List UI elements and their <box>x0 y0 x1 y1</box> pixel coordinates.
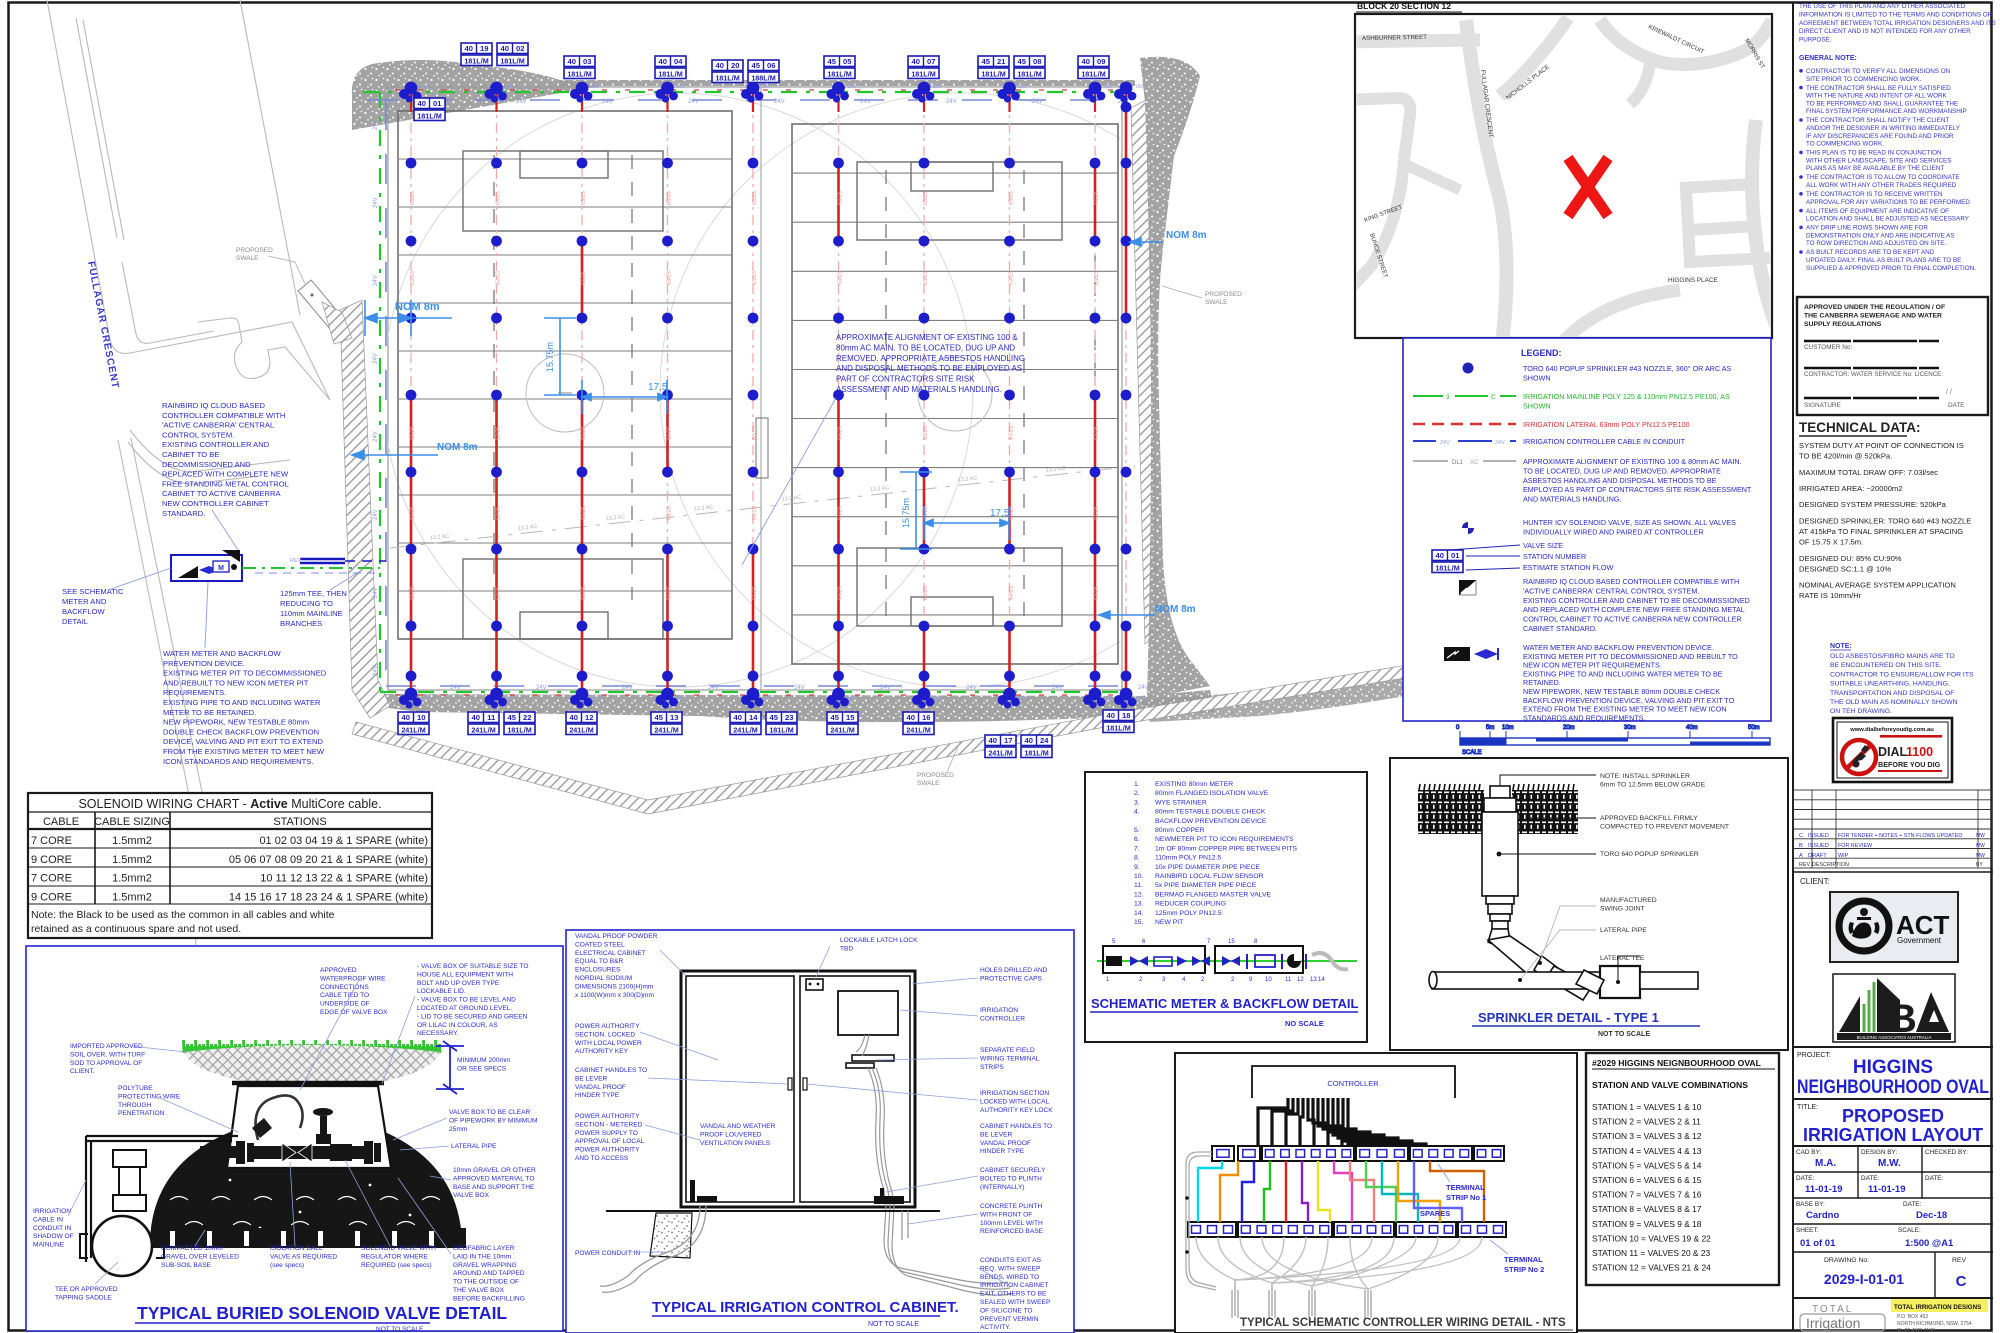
svg-text:125mm TEE, THEN: 125mm TEE, THEN <box>280 589 347 598</box>
svg-text:HINDER TYPE: HINDER TYPE <box>980 1148 1025 1155</box>
svg-text:GENERAL NOTE:: GENERAL NOTE: <box>1799 55 1857 62</box>
svg-text:NOTE:: NOTE: <box>1830 643 1852 650</box>
svg-text:THE CONTRACTOR SHALL NOTIFY TH: THE CONTRACTOR SHALL NOTIFY THE CLIENT <box>1806 117 1949 124</box>
svg-text:THROUGH: THROUGH <box>118 1102 152 1109</box>
svg-text:LATERAL PIPE: LATERAL PIPE <box>451 1143 497 1150</box>
svg-text:Note: the Black to be used as: Note: the Black to be used as the common… <box>31 909 335 921</box>
svg-text:ENCLOSURES: ENCLOSURES <box>575 967 621 974</box>
svg-text:PROPOSED: PROPOSED <box>1205 291 1242 298</box>
svg-text:180: 180 <box>1104 84 1113 90</box>
svg-text:ON TEH DRAWING.: ON TEH DRAWING. <box>1830 708 1892 715</box>
svg-text:181L/M: 181L/M <box>715 74 739 83</box>
svg-text:TORO 640 POPUP SPRINKLER: TORO 640 POPUP SPRINKLER <box>1600 851 1699 858</box>
svg-text:STATION 8 = VALVES 8 & 17: STATION 8 = VALVES 8 & 17 <box>1592 1204 1702 1214</box>
svg-text:24: 24 <box>1040 736 1049 745</box>
svg-text:63/25: 63/25 <box>752 191 758 205</box>
svg-text:OF SILICONE TO: OF SILICONE TO <box>980 1307 1033 1314</box>
svg-text:IRRIGATION MAINLINE POLY 125 &: IRRIGATION MAINLINE POLY 125 & 110mm PN1… <box>1523 392 1730 401</box>
svg-text:AND REBUILT TO NEW ICON METER: AND REBUILT TO NEW ICON METER PIT <box>163 678 309 687</box>
svg-text:MW: MW <box>1976 833 1985 839</box>
svg-text:7.: 7. <box>1134 845 1140 852</box>
svg-text:AND MATERIALS HANDLING.: AND MATERIALS HANDLING. <box>1523 495 1622 504</box>
svg-text:24V: 24V <box>1032 99 1043 105</box>
svg-text:CONTROLLER: CONTROLLER <box>1327 1079 1379 1088</box>
svg-text:BE LEVER: BE LEVER <box>575 1075 607 1082</box>
svg-text:EXISTING PIPE TO AND INCLUDING: EXISTING PIPE TO AND INCLUDING WATER MET… <box>1523 669 1723 678</box>
svg-text:AT 415kPa TO FINAL SPRINKLER A: AT 415kPa TO FINAL SPRINKLER AT SPACING <box>1799 527 1963 536</box>
svg-text:12.: 12. <box>1134 891 1144 898</box>
svg-text:15.75m: 15.75m <box>545 342 555 372</box>
svg-text:14: 14 <box>1318 977 1325 983</box>
svg-text:NEWMETER PIT TO ICON REQUIREME: NEWMETER PIT TO ICON REQUIREMENTS <box>1155 836 1294 843</box>
svg-text:COMPACTED 10mm: COMPACTED 10mm <box>161 1245 223 1252</box>
svg-text:WATER METER AND BACKFLOW PREVE: WATER METER AND BACKFLOW PREVENTION DEVI… <box>1523 643 1714 652</box>
svg-text:EDGE OF VALVE BOX: EDGE OF VALVE BOX <box>320 1009 388 1016</box>
svg-text:11-01-19: 11-01-19 <box>1805 1184 1843 1195</box>
svg-text:STATION 11 = VALVES 20 & 23: STATION 11 = VALVES 20 & 23 <box>1592 1248 1710 1258</box>
svg-text:- VALVE BOX OF SUITABLE SIZE T: - VALVE BOX OF SUITABLE SIZE TO <box>417 963 529 970</box>
svg-text:WIRING TERMINAL: WIRING TERMINAL <box>980 1055 1040 1062</box>
svg-text:24V: 24V <box>688 99 699 105</box>
svg-text:05 06 07 08 09 20 21 & 1 SPARE: 05 06 07 08 09 20 21 & 1 SPARE (white) <box>229 854 428 866</box>
svg-text:2029-I-01-01: 2029-I-01-01 <box>1824 1271 1904 1287</box>
svg-text:Government: Government <box>1897 936 1942 945</box>
svg-text:MW: MW <box>1976 843 1985 849</box>
svg-text:STATION 3 = VALVES 3 & 12: STATION 3 = VALVES 3 & 12 <box>1592 1131 1702 1141</box>
svg-text:40: 40 <box>1082 57 1090 66</box>
svg-text:25mm: 25mm <box>449 1126 468 1133</box>
svg-text:APPROVAL FOR ANY VARIATIONS TO: APPROVAL FOR ANY VARIATIONS TO BE PERFOR… <box>1806 199 1970 206</box>
svg-text:EXISTING CONTROLLER AND CABINE: EXISTING CONTROLLER AND CABINET TO BE DE… <box>1523 596 1750 605</box>
svg-text:40: 40 <box>418 99 426 108</box>
svg-text:INDIVIDUALLY WIRED AND PAIRED: INDIVIDUALLY WIRED AND PAIRED AT CONTROL… <box>1523 527 1704 536</box>
svg-text:STANDARDS AND REQUIREMENTS.: STANDARDS AND REQUIREMENTS. <box>1523 713 1645 722</box>
svg-text:BEFORE BACKFILLING: BEFORE BACKFILLING <box>453 1295 525 1302</box>
svg-text:01 of 01: 01 of 01 <box>1800 1238 1836 1249</box>
svg-text:(INTERNALLY): (INTERNALLY) <box>980 1184 1025 1191</box>
svg-text:BOLTED TO PLINTH: BOLTED TO PLINTH <box>980 1175 1042 1182</box>
svg-text:SHOWN: SHOWN <box>1523 373 1551 382</box>
svg-text:24V: 24V <box>373 275 379 286</box>
svg-text:05: 05 <box>843 57 852 66</box>
svg-text:ESTIMATE STATION FLOW: ESTIMATE STATION FLOW <box>1523 563 1613 572</box>
svg-text:63/25: 63/25 <box>496 191 502 205</box>
svg-text:63/25: 63/25 <box>1009 586 1015 600</box>
svg-text:241L/M: 241L/M <box>401 726 425 735</box>
svg-text:9 CORE: 9 CORE <box>31 891 72 903</box>
svg-text:NORTH RICHMOND, NSW, 2754: NORTH RICHMOND, NSW, 2754 <box>1897 1321 1972 1327</box>
svg-text:FREE STANDING METAL CONTROL: FREE STANDING METAL CONTROL <box>162 479 289 488</box>
svg-text:110mm POLY PN12.5: 110mm POLY PN12.5 <box>1155 855 1221 862</box>
svg-text:01: 01 <box>1451 551 1460 560</box>
svg-text:TECHNICAL DATA:: TECHNICAL DATA: <box>1799 420 1921 435</box>
svg-text:CONDUIT IN: CONDUIT IN <box>33 1225 72 1232</box>
svg-text:DEVICE, VALVING AND PIT EXIT T: DEVICE, VALVING AND PIT EXIT TO EXTEND <box>163 737 323 746</box>
svg-text:14: 14 <box>749 713 758 722</box>
svg-text:SEALED WITH SWEEP: SEALED WITH SWEEP <box>980 1299 1051 1306</box>
svg-text:TYPICAL IRRIGATION CONTROL CAB: TYPICAL IRRIGATION CONTROL CABINET. <box>652 1299 959 1316</box>
svg-text:SYSTEM DUTY AT POINT OF CONNEC: SYSTEM DUTY AT POINT OF CONNECTION IS <box>1799 441 1964 450</box>
svg-text:241L/M: 241L/M <box>471 726 495 735</box>
svg-text:12: 12 <box>1297 977 1304 983</box>
svg-text:CABLE SIZING: CABLE SIZING <box>94 816 170 828</box>
svg-text:02: 02 <box>516 44 524 53</box>
svg-text:FOR REVIEW: FOR REVIEW <box>1838 843 1873 849</box>
svg-text:CLIENT.: CLIENT. <box>70 1068 95 1075</box>
svg-text:SEE SCHEMATIC: SEE SCHEMATIC <box>62 587 124 596</box>
svg-text:180: 180 <box>506 696 515 702</box>
svg-text:AGREEMENT BETWEEN TOTAL IRRIGA: AGREEMENT BETWEEN TOTAL IRRIGATION DESIG… <box>1799 20 1996 27</box>
svg-text:63/25: 63/25 <box>410 191 416 205</box>
svg-text:OF PIPEWORK BY MINIMUM: OF PIPEWORK BY MINIMUM <box>449 1117 538 1124</box>
svg-text:LAID IN THE 10mm: LAID IN THE 10mm <box>453 1253 512 1260</box>
svg-text:DESCRIPTION: DESCRIPTION <box>1812 862 1849 868</box>
svg-text:FOR TENDER + NOTES + STN FLOWS: FOR TENDER + NOTES + STN FLOWS UPDATED <box>1838 833 1962 839</box>
svg-text:PROOF LOUVERED: PROOF LOUVERED <box>700 1131 762 1138</box>
svg-text:retained as a continuous spare: retained as a continuous spare and not u… <box>31 923 241 935</box>
svg-text:13: 13 <box>670 713 678 722</box>
svg-text:#2029 HIGGINS NEIGNBOURHOOD OV: #2029 HIGGINS NEIGNBOURHOOD OVAL <box>1592 1058 1761 1068</box>
svg-text:BEFORE YOU DIG: BEFORE YOU DIG <box>1878 760 1941 769</box>
svg-text:5m: 5m <box>1486 725 1494 731</box>
svg-text:TRANSPORTATION AND DISPOSAL OF: TRANSPORTATION AND DISPOSAL OF <box>1830 690 1954 697</box>
svg-text:14 15 16 17 18 23 24 & 1 SPARE: 14 15 16 17 18 23 24 & 1 SPARE (white) <box>229 891 428 903</box>
svg-text:REDUCING TO: REDUCING TO <box>280 599 333 608</box>
svg-text:40: 40 <box>402 713 410 722</box>
svg-text:IRRIGATED AREA: ~20000m2: IRRIGATED AREA: ~20000m2 <box>1799 484 1902 493</box>
svg-text:15.75m: 15.75m <box>901 498 911 528</box>
svg-text:63/25: 63/25 <box>667 191 673 205</box>
svg-text:DRAWING No:: DRAWING No: <box>1824 1257 1869 1264</box>
svg-text:40: 40 <box>501 44 509 53</box>
svg-text:HIGGINS PLACE: HIGGINS PLACE <box>1668 277 1718 284</box>
svg-text:40: 40 <box>1107 711 1115 720</box>
svg-text:NOT TO SCALE: NOT TO SCALE <box>1598 1031 1650 1038</box>
svg-text:NOM 8m: NOM 8m <box>1166 230 1207 241</box>
svg-text:6.: 6. <box>1134 836 1140 843</box>
svg-text:POWER AUTHORITY: POWER AUTHORITY <box>575 1023 640 1030</box>
svg-text:DATE:: DATE: <box>1903 1201 1922 1208</box>
svg-text:REQ. WITH SWEEP: REQ. WITH SWEEP <box>980 1265 1041 1272</box>
svg-text:EXTEND FROM THE EXISTING METER: EXTEND FROM THE EXISTING METER TO MEET N… <box>1523 705 1727 714</box>
svg-text:DEMONSTRATION ONLY AND ARE IND: DEMONSTRATION ONLY AND ARE INDICATIVE AS <box>1806 232 1955 239</box>
svg-text:A: A <box>1799 853 1803 859</box>
svg-text:BLOCK 20 SECTION 12: BLOCK 20 SECTION 12 <box>1357 1 1451 11</box>
svg-text:24V: 24V <box>708 685 719 691</box>
svg-text:24V: 24V <box>966 685 977 691</box>
svg-text:C: C <box>1491 394 1496 401</box>
svg-text:18: 18 <box>1122 711 1130 720</box>
svg-text:BACKFLOW PREVENTION DEVICE, VA: BACKFLOW PREVENTION DEVICE, VALVING AND … <box>1523 696 1735 705</box>
svg-text:13: 13 <box>1310 977 1317 983</box>
svg-text:SWING JOINT: SWING JOINT <box>1600 906 1645 913</box>
svg-text:181L/M: 181L/M <box>1017 70 1041 79</box>
svg-text:45: 45 <box>752 61 761 70</box>
svg-text:NEW PIPEWORK, NEW TESTABLE 80m: NEW PIPEWORK, NEW TESTABLE 80mm <box>163 718 309 727</box>
svg-text:AC: AC <box>1470 460 1479 466</box>
svg-text:HOUSE ALL EQUIPMENT WITH: HOUSE ALL EQUIPMENT WITH <box>417 971 513 978</box>
svg-text:EXIT, OTHERS TO BE: EXIT, OTHERS TO BE <box>980 1291 1047 1298</box>
svg-text:CABINET TO ACTIVE CANBERRA: CABINET TO ACTIVE CANBERRA <box>162 489 282 498</box>
svg-text:Ph 02 4571 1188: Ph 02 4571 1188 <box>1897 1328 1935 1333</box>
svg-text:40m: 40m <box>1686 725 1698 731</box>
svg-text:4.: 4. <box>1134 809 1140 816</box>
svg-text:181L/M: 181L/M <box>827 70 851 79</box>
svg-text:14.: 14. <box>1134 910 1144 917</box>
svg-text:STRIP No 1: STRIP No 1 <box>1446 1193 1486 1202</box>
svg-text:1.5mm2: 1.5mm2 <box>112 854 152 866</box>
svg-text:40: 40 <box>568 57 576 66</box>
svg-text:IRRIGATION LAYOUT: IRRIGATION LAYOUT <box>1803 1125 1983 1145</box>
svg-text:VALVE AS REQUIRED: VALVE AS REQUIRED <box>270 1253 337 1260</box>
svg-text:DECOMMISSIONED AND: DECOMMISSIONED AND <box>162 460 251 469</box>
svg-text:VALVE SIZE: VALVE SIZE <box>1523 541 1563 550</box>
svg-text:7 CORE: 7 CORE <box>31 835 72 847</box>
svg-text:63/25: 63/25 <box>1094 191 1100 205</box>
svg-text:STATION 7 = VALVES 7 & 16: STATION 7 = VALVES 7 & 16 <box>1592 1190 1702 1200</box>
svg-text:63/25: 63/25 <box>838 586 844 600</box>
svg-text:SCALE:: SCALE: <box>1898 1227 1921 1234</box>
svg-text:63/25: 63/25 <box>752 426 758 440</box>
svg-text:24V: 24V <box>602 99 613 105</box>
svg-text:RAINBIRD IQ CLOUD BASED: RAINBIRD IQ CLOUD BASED <box>162 401 265 410</box>
svg-text:24V: 24V <box>1138 685 1149 691</box>
svg-text:DESIGNED DU: 85% CU:90%: DESIGNED DU: 85% CU:90% <box>1799 554 1902 563</box>
svg-text:COATED STEEL: COATED STEEL <box>575 941 625 948</box>
svg-text:PART OF CONTRACTORS SITE RISK: PART OF CONTRACTORS SITE RISK <box>836 375 975 384</box>
svg-text:APPROVED BACKFILL FIRMLY: APPROVED BACKFILL FIRMLY <box>1600 815 1698 822</box>
svg-text:REQUIREMENTS.: REQUIREMENTS. <box>163 688 226 697</box>
svg-text:POWER SUPPLY TO: POWER SUPPLY TO <box>575 1130 638 1137</box>
svg-text:63/25: 63/25 <box>496 426 502 440</box>
svg-text:CONTRACTOR: WATER SERVICE No: CONTRACTOR: WATER SERVICE No: LICENCE: <box>1804 371 1943 378</box>
svg-text:RATE IS 10mm/Hr: RATE IS 10mm/Hr <box>1799 591 1862 600</box>
svg-text:SOLENOID VALVE WITH: SOLENOID VALVE WITH <box>361 1245 436 1252</box>
svg-text:LEGEND:: LEGEND: <box>1521 348 1562 358</box>
svg-text:40: 40 <box>465 44 473 53</box>
svg-text:24V: 24V <box>373 509 379 520</box>
svg-text:AS BUILT RECORDS ARE TO BE KEP: AS BUILT RECORDS ARE TO BE KEPT AND <box>1806 249 1935 256</box>
svg-text:LOCKED WITH LOCAL: LOCKED WITH LOCAL <box>980 1098 1050 1105</box>
svg-text:BY: BY <box>1976 862 1983 868</box>
svg-text:ISOLATION BALL: ISOLATION BALL <box>270 1245 323 1252</box>
svg-text:ALL WORK WITH ANY OTHER TRADES: ALL WORK WITH ANY OTHER TRADES REQUIRED <box>1806 182 1957 189</box>
svg-text:40: 40 <box>1436 551 1444 560</box>
svg-text:180: 180 <box>933 84 942 90</box>
svg-text:07: 07 <box>927 57 935 66</box>
svg-text:Dec-18: Dec-18 <box>1916 1210 1947 1221</box>
svg-text:LOCATION AND SHALL BE ADJUSTED: LOCATION AND SHALL BE ADJUSTED AS NECESS… <box>1806 216 1970 223</box>
svg-text:241L/M: 241L/M <box>569 726 593 735</box>
svg-text:17,5: 17,5 <box>648 382 668 393</box>
svg-text:180: 180 <box>762 84 771 90</box>
svg-text:OF 15.75 X 17.5m.: OF 15.75 X 17.5m. <box>1799 538 1863 547</box>
svg-text:1m OF 80mm COPPER PIPE BETWEEN: 1m OF 80mm COPPER PIPE BETWEEN PITS <box>1155 845 1297 852</box>
svg-text:SHADOW OF: SHADOW OF <box>33 1233 74 1240</box>
svg-text:181L/M: 181L/M <box>1024 749 1048 758</box>
svg-text:15: 15 <box>1228 939 1235 945</box>
svg-text:THE OLD MAIN AS NOMINALLY SHOW: THE OLD MAIN AS NOMINALLY SHOWN <box>1830 699 1957 706</box>
svg-text:TYPICAL SCHEMATIC CONTROLLER W: TYPICAL SCHEMATIC CONTROLLER WIRING DETA… <box>1240 1317 1566 1329</box>
svg-text:IF ANY DISCREPANCIES ARE FOUND: IF ANY DISCREPANCIES ARE FOUND AND PRIOR <box>1806 133 1954 140</box>
svg-text:TAPPING SADDLE: TAPPING SADDLE <box>55 1294 112 1301</box>
svg-text:45: 45 <box>1018 57 1027 66</box>
svg-text:CONTROL SYSTEM.: CONTROL SYSTEM. <box>162 430 234 439</box>
svg-text:180: 180 <box>677 696 686 702</box>
svg-text:EQUAL TO B&R: EQUAL TO B&R <box>575 958 623 965</box>
svg-text:180: 180 <box>933 696 942 702</box>
svg-text:180: 180 <box>1019 696 1028 702</box>
svg-text:SOLENOID WIRING CHART - Active: SOLENOID WIRING CHART - Active MultiCore… <box>78 797 381 811</box>
svg-text:CABLE IN: CABLE IN <box>33 1216 63 1223</box>
svg-text:11-01-19: 11-01-19 <box>1868 1184 1906 1195</box>
svg-text:NOM 8m: NOM 8m <box>1155 604 1196 615</box>
svg-text:TO BE PERFORMED AND SHALL GUAR: TO BE PERFORMED AND SHALL GUARANTEE THE <box>1806 100 1958 107</box>
svg-text:40: 40 <box>716 61 724 70</box>
svg-text:19: 19 <box>480 44 488 53</box>
svg-text:63/25: 63/25 <box>496 271 502 285</box>
svg-text:63/25: 63/25 <box>667 426 673 440</box>
svg-text:POWER AUTHORITY: POWER AUTHORITY <box>575 1147 640 1154</box>
svg-text:VALVE BOX TO BE CLEAR: VALVE BOX TO BE CLEAR <box>449 1109 530 1116</box>
svg-text:45: 45 <box>655 713 664 722</box>
svg-text:REPLACED WITH COMPLETE NEW: REPLACED WITH COMPLETE NEW <box>162 470 289 479</box>
svg-text:Irrigation: Irrigation <box>1806 1315 1860 1331</box>
svg-text:TITLE:: TITLE: <box>1797 1104 1818 1111</box>
svg-text:STATION 4 = VALVES 4 & 13: STATION 4 = VALVES 4 & 13 <box>1592 1146 1702 1156</box>
svg-text:RAINBIRD IQ CLOUD BASED CONTRO: RAINBIRD IQ CLOUD BASED CONTROLLER COMPA… <box>1523 577 1739 586</box>
svg-text:180: 180 <box>848 84 857 90</box>
svg-text:SPRINKLER DETAIL - TYPE 1: SPRINKLER DETAIL - TYPE 1 <box>1478 1010 1659 1025</box>
svg-text:DIMENSIONS 2100(H)mm: DIMENSIONS 2100(H)mm <box>575 983 654 990</box>
svg-text:NEW CONTROLLER CABINET: NEW CONTROLLER CABINET <box>162 499 269 508</box>
svg-text:IRRIGATION CONTROLLER CABLE IN: IRRIGATION CONTROLLER CABLE IN CONDUIT <box>1523 437 1686 446</box>
svg-text:METER TO BE RETAINED.: METER TO BE RETAINED. <box>163 708 256 717</box>
svg-text:63/25: 63/25 <box>410 426 416 440</box>
svg-text:3: 3 <box>1446 394 1450 401</box>
svg-text:CONNECTIONS: CONNECTIONS <box>320 984 369 991</box>
svg-text:OR LILAC IN COLOUR, AS: OR LILAC IN COLOUR, AS <box>417 1022 498 1029</box>
svg-text:REMOVED. APPROPRIATE ASBESTOS: REMOVED. APPROPRIATE ASBESTOS HANDLING <box>836 354 1025 363</box>
svg-text:181L/M: 181L/M <box>1435 564 1459 573</box>
svg-text:VANDAL PROOF POWDER: VANDAL PROOF POWDER <box>575 933 658 940</box>
svg-text:SWALE: SWALE <box>1205 299 1228 306</box>
svg-text:GEOFABRIC LAYER: GEOFABRIC LAYER <box>453 1245 515 1252</box>
svg-text:CABINET TO BE: CABINET TO BE <box>162 450 219 459</box>
svg-text:08: 08 <box>1033 57 1041 66</box>
svg-text:HOLES DRILLED AND: HOLES DRILLED AND <box>980 967 1048 974</box>
svg-text:LATERAL PIPE: LATERAL PIPE <box>1600 927 1647 934</box>
svg-text:ISSUED: ISSUED <box>1808 833 1829 839</box>
svg-text:ACTIVITY.: ACTIVITY. <box>980 1324 1011 1331</box>
svg-text:125mm POLY PN12.5: 125mm POLY PN12.5 <box>1155 910 1222 917</box>
svg-text:FROM THE EXISTING METER TO MEE: FROM THE EXISTING METER TO MEET NEW <box>163 747 325 756</box>
svg-text:STRIP No 2: STRIP No 2 <box>1504 1265 1544 1274</box>
svg-text:45: 45 <box>828 57 837 66</box>
svg-text:63/25: 63/25 <box>581 426 587 440</box>
svg-text:181L/M: 181L/M <box>417 112 441 121</box>
svg-text:63/25: 63/25 <box>581 271 587 285</box>
svg-text:NOM 8m: NOM 8m <box>395 301 440 313</box>
svg-text:TEE OR APPROVED: TEE OR APPROVED <box>55 1286 118 1293</box>
svg-text:63/25: 63/25 <box>838 426 844 440</box>
svg-text:CLIENT:: CLIENT: <box>1800 877 1830 886</box>
svg-text:180: 180 <box>1104 696 1113 702</box>
svg-text:241L/M: 241L/M <box>906 726 930 735</box>
svg-text:80mm COPPER: 80mm COPPER <box>1155 827 1205 834</box>
svg-text:REV: REV <box>290 558 302 564</box>
svg-text:SHEET:: SHEET: <box>1796 1227 1819 1234</box>
svg-text:APPROVED MATERIAL TO: APPROVED MATERIAL TO <box>453 1175 534 1182</box>
svg-text:24V: 24V <box>373 197 379 208</box>
svg-text:STATION 12 = VALVES 21 & 24: STATION 12 = VALVES 21 & 24 <box>1592 1263 1711 1273</box>
svg-text:23: 23 <box>785 713 793 722</box>
svg-text:NORDIAL SODIUM: NORDIAL SODIUM <box>575 975 632 982</box>
svg-text:10x PIPE DIAMETER PIPE PIECE: 10x PIPE DIAMETER PIPE PIECE <box>1155 864 1260 871</box>
svg-text:CHECKED BY:: CHECKED BY: <box>1925 1149 1968 1156</box>
svg-text:181L/M: 181L/M <box>567 70 591 79</box>
svg-text:BASE AND SUPPORT THE: BASE AND SUPPORT THE <box>453 1184 535 1191</box>
svg-text:CONDUITS EXIT AS: CONDUITS EXIT AS <box>980 1257 1042 1264</box>
svg-text:24V: 24V <box>774 99 785 105</box>
svg-text:BE LEVER: BE LEVER <box>980 1131 1012 1138</box>
svg-text:AUTHORITY KEY LOCK: AUTHORITY KEY LOCK <box>980 1107 1053 1114</box>
svg-text:40: 40 <box>570 713 578 722</box>
svg-text:STATION 5 = VALVES 5 & 14: STATION 5 = VALVES 5 & 14 <box>1592 1160 1702 1170</box>
svg-text:10m: 10m <box>1502 725 1514 731</box>
svg-text:OLD ASBESTOS/FIBRO MAINS ARE T: OLD ASBESTOS/FIBRO MAINS ARE TO <box>1830 653 1955 660</box>
svg-text:AND TO ACCESS: AND TO ACCESS <box>575 1155 629 1162</box>
svg-text:40: 40 <box>659 57 667 66</box>
svg-text:DL1: DL1 <box>1452 460 1464 466</box>
svg-text:THE CONTRACTOR SHALL BE FULLY: THE CONTRACTOR SHALL BE FULLY SATISFIED <box>1806 85 1951 92</box>
svg-text:TO BE 420l/min @ 520kPa.: TO BE 420l/min @ 520kPa. <box>1799 452 1892 461</box>
svg-text:40: 40 <box>1025 736 1033 745</box>
svg-text:80mm TESTABLE DOUBLE CHECK: 80mm TESTABLE DOUBLE CHECK <box>1155 809 1266 816</box>
svg-text:NOTE: INSTALL SPRINKLER: NOTE: INSTALL SPRINKLER <box>1600 773 1690 780</box>
svg-text:63/25: 63/25 <box>410 506 416 520</box>
svg-text:TO BE LOCATED, DUG UP AND REMO: TO BE LOCATED, DUG UP AND REMOVED. APPRO… <box>1523 466 1721 475</box>
svg-text:SITE PRIOR TO COMMENCING WORK.: SITE PRIOR TO COMMENCING WORK. <box>1806 76 1921 83</box>
svg-text:24V: 24V <box>794 685 805 691</box>
svg-text:MAXIMUM TOTAL DRAW OFF: 7.03l/: MAXIMUM TOTAL DRAW OFF: 7.03l/sec <box>1799 468 1938 477</box>
svg-text:180: 180 <box>1135 84 1144 90</box>
svg-text:181L/M: 181L/M <box>464 57 488 66</box>
svg-text:SHOWN: SHOWN <box>1523 401 1551 410</box>
svg-text:UPDATED DAILY. FINAL AS BUILT: UPDATED DAILY. FINAL AS BUILT PLANS ARE … <box>1806 257 1961 264</box>
svg-text:63/25: 63/25 <box>410 586 416 600</box>
svg-text:63/25: 63/25 <box>1094 506 1100 520</box>
svg-text:11.: 11. <box>1134 882 1143 889</box>
svg-text:INFORMATION IS LIMITED TO THE: INFORMATION IS LIMITED TO THE TERMS AND … <box>1799 11 1993 18</box>
svg-text:04: 04 <box>674 57 683 66</box>
svg-text:63/25: 63/25 <box>923 271 929 285</box>
svg-text:80mm FLANGED ISOLATION VALVE: 80mm FLANGED ISOLATION VALVE <box>1155 790 1269 797</box>
svg-text:12: 12 <box>585 713 593 722</box>
svg-text:BRANCHES: BRANCHES <box>280 619 322 628</box>
svg-text:100mm LEVEL WITH: 100mm LEVEL WITH <box>980 1220 1043 1227</box>
svg-text:1100: 1100 <box>1906 745 1933 759</box>
svg-text:STATIONS: STATIONS <box>273 816 326 828</box>
svg-text:STATION AND VALVE COMBINATIONS: STATION AND VALVE COMBINATIONS <box>1592 1080 1748 1090</box>
svg-text:63/25: 63/25 <box>410 271 416 285</box>
svg-text:M: M <box>218 565 224 572</box>
svg-text:STATION 9 = VALVES 9 & 18: STATION 9 = VALVES 9 & 18 <box>1592 1219 1702 1229</box>
svg-text:AROUND AND TAPPED: AROUND AND TAPPED <box>453 1270 525 1277</box>
svg-text:CABLE: CABLE <box>43 816 79 828</box>
svg-text:REINFORCED BASE: REINFORCED BASE <box>980 1228 1044 1235</box>
svg-text:NEW PIPEWORK, NEW TESTABLE 80m: NEW PIPEWORK, NEW TESTABLE 80mm DOUBLE C… <box>1523 687 1720 696</box>
